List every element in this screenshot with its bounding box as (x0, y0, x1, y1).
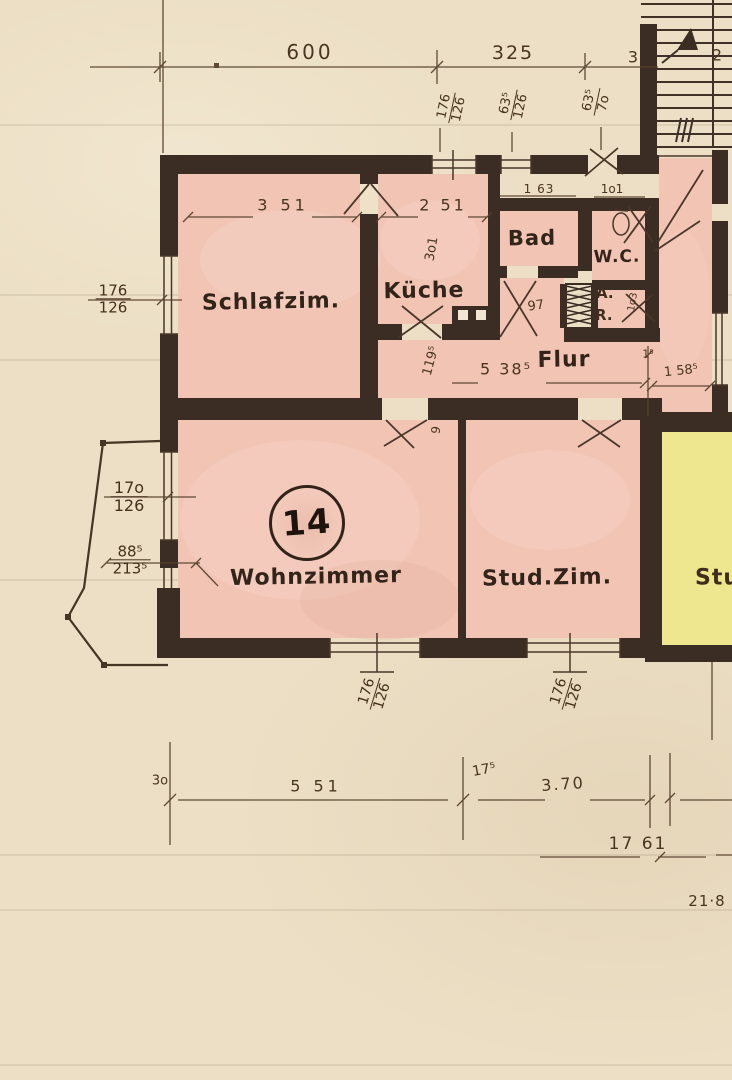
room-label-flur: Flur (537, 347, 591, 373)
room-label-abstellraum-r: R. (595, 306, 613, 324)
floor-plan: 600 325 3 2 176 126 63⁵ 126 63⁵ 7o 3 51 … (0, 0, 732, 1080)
window-fraction-top-3: 63⁵ 7o (580, 85, 614, 118)
dim-top-width-left: 600 (286, 40, 333, 64)
room-label-abstellraum-a: A. (596, 284, 614, 302)
room-label-wohnzimmer: Wohnzimmer (230, 563, 402, 591)
window-fraction-left: 176 126 (96, 282, 131, 315)
dim-bottom-width-left: 5 51 (290, 777, 342, 796)
window-fraction-bay-upper: 17o 126 (111, 479, 148, 515)
dim-flur-length: 5 38⁵ (480, 360, 532, 379)
dim-bad-width: 1 63 (524, 182, 555, 196)
room-label-wc: W.C. (593, 247, 640, 268)
room-label-kueche: Küche (383, 278, 464, 304)
dim-bad-door: 97 (527, 297, 545, 314)
plan-linework (0, 0, 732, 1080)
dim-wc-width: 1o1 (601, 182, 624, 196)
dim-bottom-left-small: 3o (152, 774, 168, 789)
dim-top-small-right: 2 (712, 46, 722, 65)
room-label-bad: Bad (508, 226, 557, 251)
room-label-studierzimmer-right: Stud (695, 566, 732, 591)
dim-corridor-small: 1⁵ (642, 348, 653, 361)
dim-bottom-corner: 21·8 (688, 892, 725, 910)
room-label-schlafzimmer: Schlafzim. (202, 288, 341, 315)
dim-bottom-total: 17 61 (609, 834, 668, 854)
dim-top-small-mid: 3 (628, 48, 638, 67)
apartment-number-badge: 14 (269, 485, 345, 561)
dim-top-width-right: 325 (492, 42, 534, 64)
stairs-direction-arrow (677, 28, 698, 50)
room-label-studierzimmer: Stud.Zim. (482, 564, 612, 591)
dim-kueche-width: 2 51 (419, 196, 467, 215)
dim-bottom-width-right: 3.70 (541, 773, 586, 795)
window-fraction-bay-lower: 88⁵ 213⁵ (110, 543, 151, 576)
shaft-hatch (566, 284, 592, 328)
dim-schlafzimmer-width: 3 51 (257, 196, 309, 215)
apartment-number: 14 (281, 501, 333, 544)
